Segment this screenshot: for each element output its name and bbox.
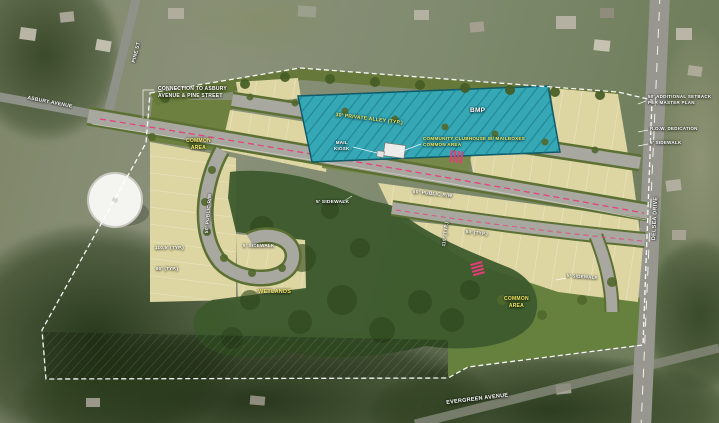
- site-plan-graphics: [0, 0, 719, 423]
- mail-kiosk-label: MAIL KIOSK: [334, 140, 350, 152]
- water-tower: [88, 173, 149, 227]
- common-area-nw-label: COMMON AREA: [186, 138, 211, 151]
- bmp-label: BMP: [470, 107, 485, 115]
- clubhouse-label: COMMUNITY CLUBHOUSE W/ MAILBOXES COMMON …: [423, 136, 525, 148]
- lot-width-left-label: 60' (TYP.): [156, 266, 178, 272]
- setback-note: 50' ADDITIONAL SETBACK PER MASTER PLAN: [648, 94, 711, 106]
- site-plan-map: CONNECTION TO ASBURY AVENUE & PINE STREE…: [0, 0, 719, 423]
- common-area-se-label: COMMON AREA: [504, 296, 529, 309]
- wetlands-label: WETLANDS: [258, 289, 291, 296]
- lot-depth-left-label: 110.5' (TYP.): [155, 245, 184, 251]
- connection-note: CONNECTION TO ASBURY AVENUE & PINE STREE…: [158, 86, 227, 99]
- sidewalk-center-label: 5' SIDEWALK: [316, 200, 349, 206]
- mail-kiosk-building: [377, 151, 385, 158]
- sidewalk-loop-label: 5' SIDEWALK: [243, 243, 274, 249]
- row-dedication-note: R.O.W. DEDICATION: [650, 126, 698, 132]
- bottom-strip-hatch: [44, 332, 448, 379]
- sidewalk-delsea-label: 5' SIDEWALK: [650, 140, 681, 146]
